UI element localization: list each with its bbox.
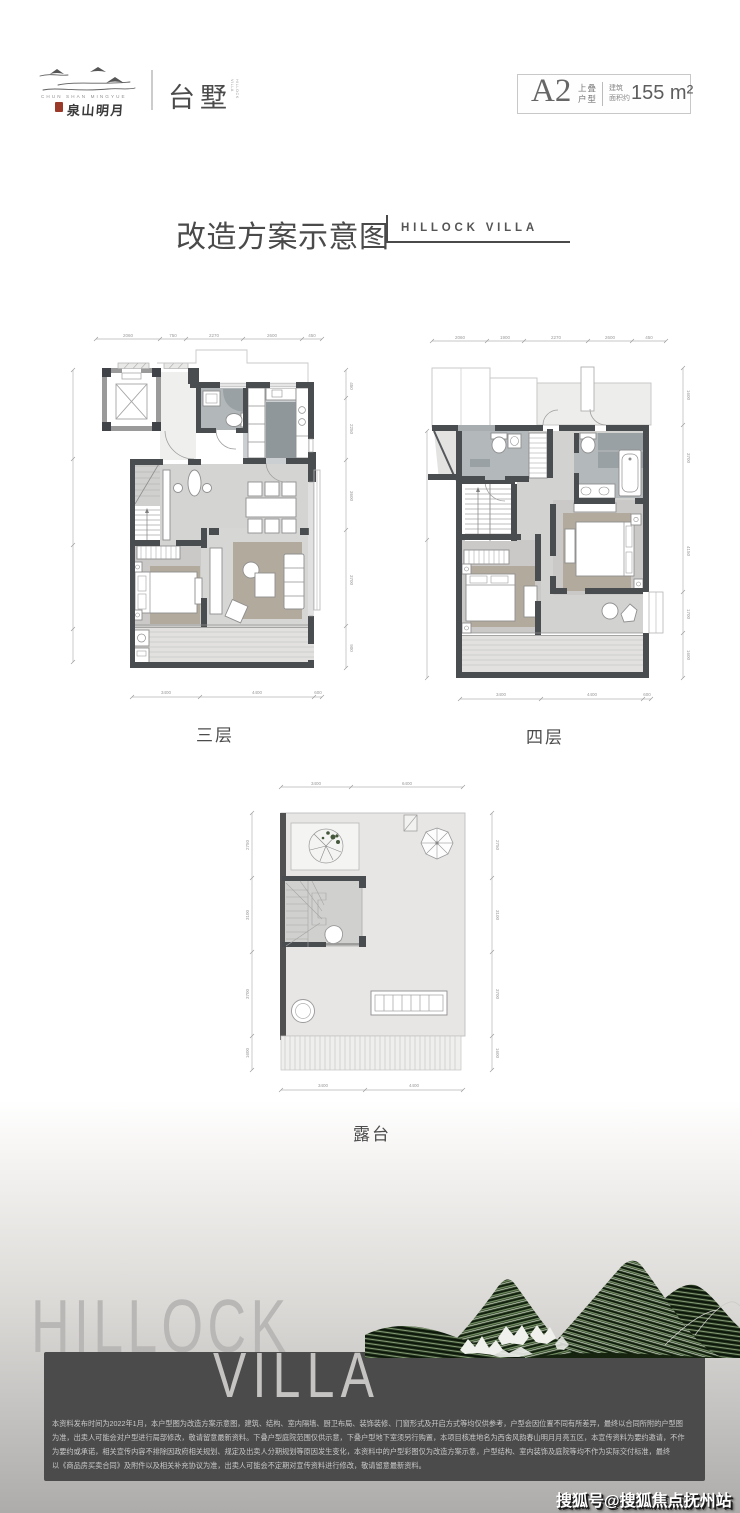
svg-text:1600: 1600: [686, 650, 691, 661]
svg-text:2270: 2270: [209, 333, 220, 338]
svg-text:1900: 1900: [500, 335, 511, 340]
svg-text:450: 450: [645, 335, 653, 340]
svg-text:2250: 2250: [349, 424, 354, 435]
svg-text:4400: 4400: [409, 1083, 420, 1088]
svg-text:1300: 1300: [70, 639, 71, 650]
svg-text:6400: 6400: [402, 781, 413, 786]
svg-text:450: 450: [308, 333, 316, 338]
svg-text:600: 600: [314, 690, 322, 695]
svg-text:900: 900: [349, 644, 354, 652]
svg-text:450: 450: [349, 382, 354, 390]
svg-text:3400: 3400: [311, 781, 322, 786]
svg-text:CHUN SHAN MINGYUE: CHUN SHAN MINGYUE: [41, 94, 127, 99]
svg-text:1600: 1600: [686, 390, 691, 401]
svg-text:3100: 3100: [495, 910, 500, 921]
svg-text:3700: 3700: [245, 988, 250, 999]
svg-text:2060: 2060: [123, 333, 134, 338]
svg-text:3400: 3400: [161, 690, 172, 695]
svg-text:1600: 1600: [495, 1048, 500, 1059]
svg-text:1600: 1600: [245, 1047, 250, 1058]
svg-text:2750: 2750: [245, 839, 250, 850]
svg-text:4400: 4400: [587, 692, 598, 697]
svg-text:2600: 2600: [605, 335, 616, 340]
svg-text:2270: 2270: [551, 335, 562, 340]
svg-text:3400: 3400: [318, 1083, 329, 1088]
svg-text:4400: 4400: [252, 690, 263, 695]
svg-text:600: 600: [643, 692, 651, 697]
svg-text:3700: 3700: [495, 989, 500, 1000]
svg-text:3100: 3100: [245, 909, 250, 920]
svg-text:4150: 4150: [686, 546, 691, 557]
svg-text:3400: 3400: [70, 496, 71, 507]
svg-text:3400: 3400: [496, 692, 507, 697]
svg-text:3650: 3650: [70, 408, 71, 419]
svg-text:3700: 3700: [686, 453, 691, 464]
svg-text:3600: 3600: [349, 491, 354, 502]
svg-text:2600: 2600: [267, 333, 278, 338]
svg-text:2750: 2750: [495, 840, 500, 851]
svg-text:2060: 2060: [455, 335, 466, 340]
svg-text:3350: 3350: [70, 581, 71, 592]
svg-text:750: 750: [169, 333, 177, 338]
svg-text:1700: 1700: [686, 609, 691, 620]
svg-text:3700: 3700: [349, 575, 354, 586]
